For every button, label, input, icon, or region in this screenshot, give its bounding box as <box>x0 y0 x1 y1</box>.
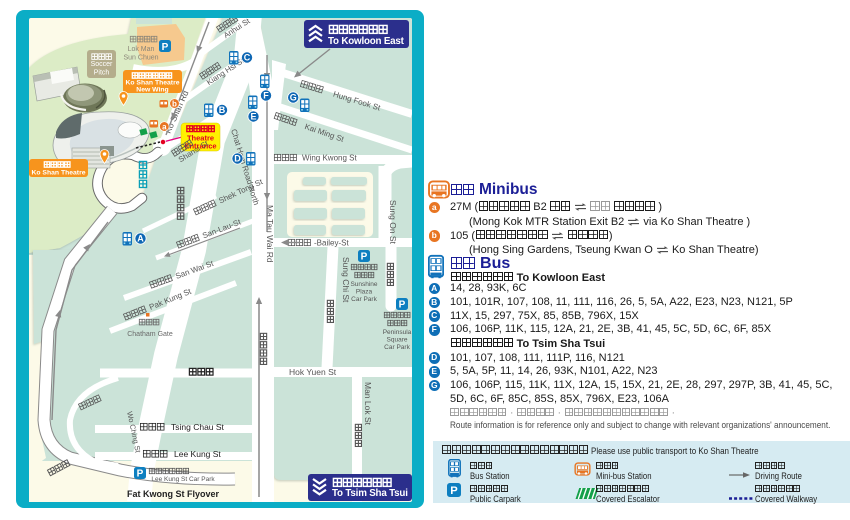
svg-text:Sun Chuen: Sun Chuen <box>123 55 158 62</box>
svg-text:Lok Man: Lok Man <box>128 46 155 53</box>
svg-text:Hok Yuen St: Hok Yuen St <box>289 367 337 377</box>
svg-text:Sung Chi St: Sung Chi St <box>341 257 351 303</box>
svg-text:B: B <box>219 105 226 115</box>
svg-text:C: C <box>244 53 251 63</box>
svg-text:Peninsula: Peninsula <box>383 329 412 336</box>
svg-text:Plaza: Plaza <box>356 289 373 296</box>
svg-text:b: b <box>172 100 177 109</box>
svg-text:P: P <box>399 300 406 311</box>
svg-text:D: D <box>234 154 241 164</box>
svg-text:F: F <box>263 91 269 101</box>
svg-text:Sung On St: Sung On St <box>388 200 398 245</box>
svg-text:G: G <box>290 93 297 103</box>
svg-text:Soccer: Soccer <box>91 61 113 68</box>
svg-text:Sunshine: Sunshine <box>350 281 377 288</box>
svg-text:Fat Kwong St Flyover: Fat Kwong St Flyover <box>127 489 220 499</box>
svg-text:Wing Kwong St: Wing Kwong St <box>302 154 357 163</box>
svg-text:Ko Shan Theatre: Ko Shan Theatre <box>31 170 85 177</box>
svg-text:P: P <box>361 252 368 263</box>
svg-text:P: P <box>450 485 458 497</box>
svg-text:New Wing: New Wing <box>136 87 168 94</box>
svg-text:P: P <box>137 469 144 480</box>
svg-text:Ko Shan Theatre: Ko Shan Theatre <box>125 80 179 87</box>
svg-text:Tsing Chau St: Tsing Chau St <box>171 422 225 432</box>
svg-text:Lee Kung St: Lee Kung St <box>174 449 221 459</box>
svg-text:To Kowloon East: To Kowloon East <box>328 36 405 47</box>
svg-text:Lee Kung St Car Park: Lee Kung St Car Park <box>151 476 215 483</box>
svg-text:A: A <box>137 234 144 244</box>
svg-text:Car Park: Car Park <box>351 296 377 303</box>
svg-text:E: E <box>250 112 256 122</box>
svg-text:Pitch: Pitch <box>94 70 110 77</box>
svg-text:To Tsim Sha Tsui: To Tsim Sha Tsui <box>332 488 408 499</box>
svg-text:a: a <box>162 123 167 132</box>
svg-text:Car Park: Car Park <box>384 344 410 351</box>
svg-text:Chatham Gate: Chatham Gate <box>127 331 173 338</box>
svg-text:Square: Square <box>387 337 408 344</box>
svg-text:-Bailey-St: -Bailey-St <box>314 239 349 248</box>
svg-text:Man Lok St: Man Lok St <box>363 382 373 426</box>
svg-text:P: P <box>162 42 169 53</box>
